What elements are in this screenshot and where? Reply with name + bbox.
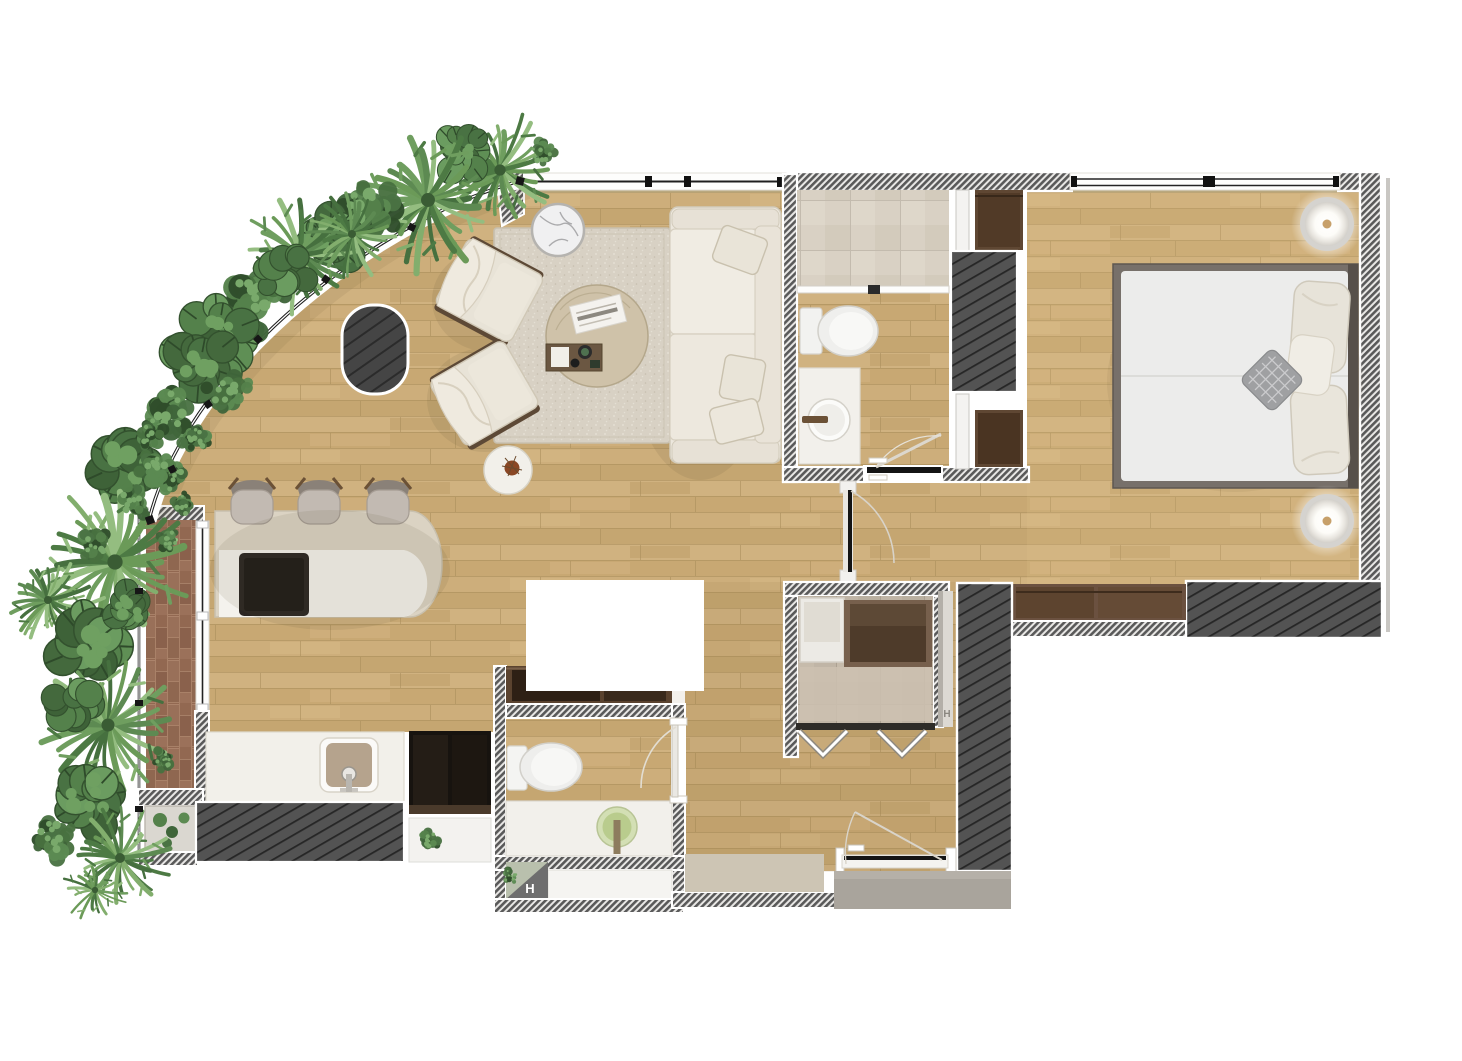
svg-text:H: H [943,709,950,720]
svg-text:H: H [525,881,534,896]
